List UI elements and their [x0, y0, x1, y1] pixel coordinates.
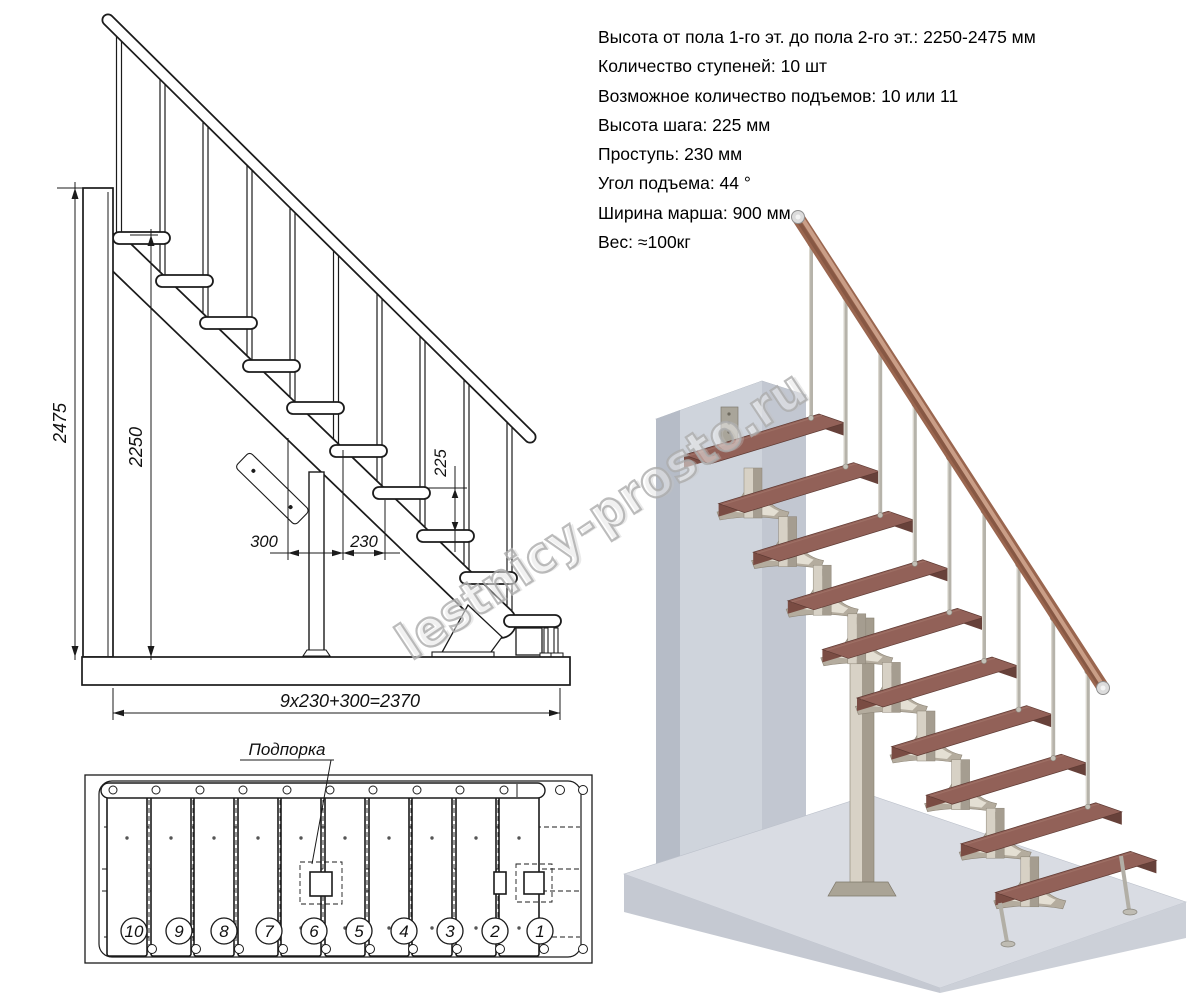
- plan-view: 10 9 8 7 6 5 4 3 2 1 Подпорка: [85, 740, 592, 963]
- step-number-7: 7: [264, 922, 274, 941]
- step-number-2: 2: [489, 922, 500, 941]
- step-number-10: 10: [125, 922, 144, 941]
- dim-floor-height: 2250: [126, 427, 146, 468]
- dim-rise: 225: [432, 448, 450, 477]
- elevation-floor-slab: [82, 657, 570, 685]
- blueprint-canvas: Высота от пола 1-го эт. до пола 2-го эт.…: [0, 0, 1191, 993]
- render-3d: [624, 211, 1186, 993]
- step-number-4: 4: [399, 922, 408, 941]
- step-number-9: 9: [174, 922, 184, 941]
- dim-bottom-run: 300: [250, 533, 278, 551]
- elevation-wall-column: [83, 188, 113, 657]
- elevation-post: [303, 472, 330, 656]
- step-number-6: 6: [309, 922, 319, 941]
- dim-total-height: 2475: [50, 402, 70, 444]
- step-number-5: 5: [354, 922, 364, 941]
- stringer-splice-plate: [235, 452, 310, 526]
- dim-total-run: 9x230+300=2370: [280, 691, 420, 711]
- step-number-1: 1: [535, 922, 544, 941]
- dim-tread-run: 230: [349, 533, 378, 551]
- drawing-svg: 2475 2250 225: [0, 0, 1191, 993]
- support-label: Подпорка: [249, 740, 326, 759]
- elevation-view: 2475 2250 225: [50, 20, 570, 720]
- step-number-8: 8: [219, 922, 229, 941]
- elevation-stringer: [114, 250, 500, 622]
- step-number-3: 3: [445, 922, 455, 941]
- elevation-handrail: [108, 20, 530, 437]
- plan-handrail: [101, 783, 588, 798]
